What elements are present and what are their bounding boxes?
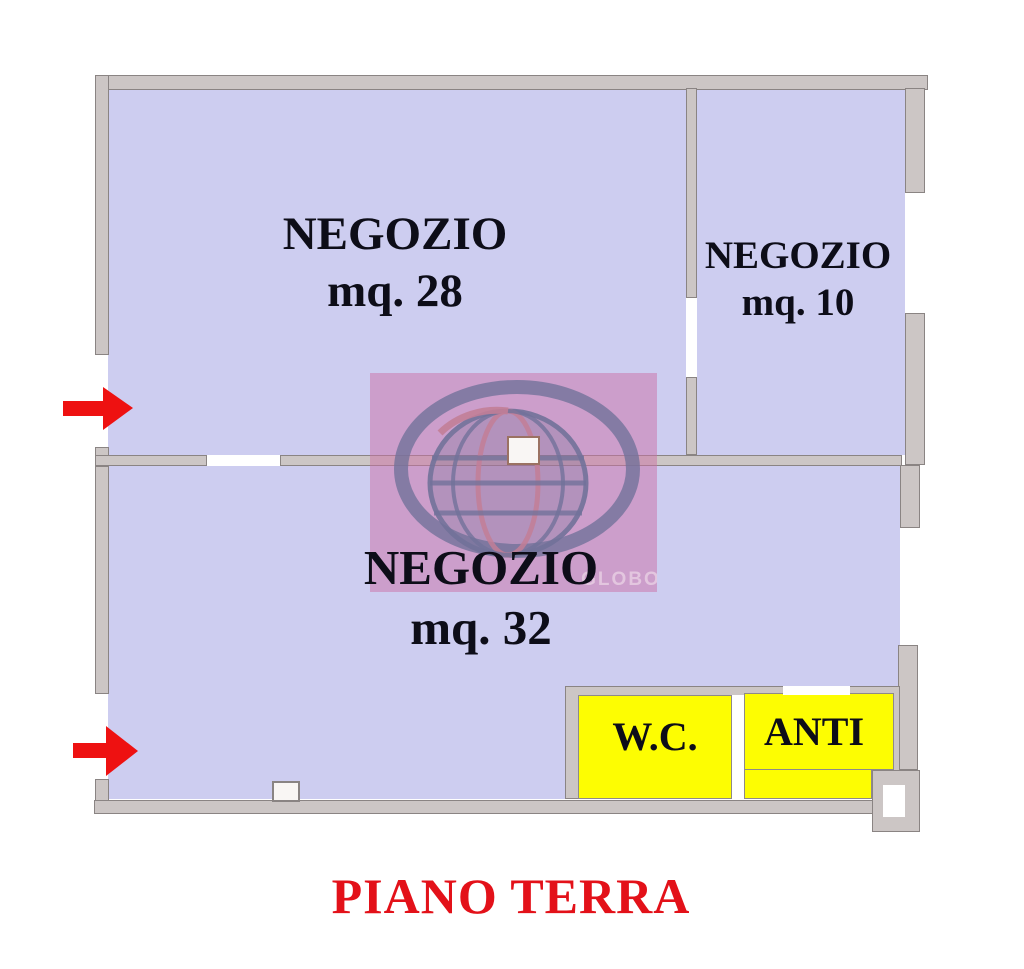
page-title: PIANO TERRA	[211, 867, 811, 925]
door-gap-anti-top	[783, 686, 850, 695]
wall-divider-left	[95, 455, 207, 466]
room-name: NEGOZIO	[281, 538, 681, 598]
wall-left-upper	[95, 75, 109, 355]
label-anti: ANTI	[744, 709, 884, 755]
entrance-arrow-upper	[60, 380, 140, 436]
label-wc: W.C.	[578, 714, 732, 760]
corner-block-recess	[883, 785, 905, 817]
floor-plan: GLOBO NEGOZIO mq. 28 NEGOZIO mq. 10 NEGO…	[0, 0, 1024, 969]
wall-right-upper	[905, 88, 925, 193]
entrance-arrow-lower	[69, 720, 144, 782]
door-divider-wall	[507, 436, 540, 465]
room-area: mq. 28	[195, 263, 595, 320]
room-name: NEGOZIO	[195, 206, 595, 263]
label-negozio-28: NEGOZIO mq. 28	[195, 206, 595, 320]
wall-right-mid	[905, 313, 925, 465]
room-name: NEGOZIO	[648, 232, 948, 279]
wall-top	[96, 75, 928, 90]
room-area: mq. 32	[281, 598, 681, 658]
wall-left-lower	[95, 466, 109, 694]
label-negozio-32: NEGOZIO mq. 32	[281, 538, 681, 658]
wall-bottom	[94, 800, 900, 814]
room-area: mq. 10	[648, 279, 948, 326]
wall-corner-block	[872, 770, 920, 832]
wall-right-lower-a	[900, 465, 920, 528]
wall-right-lower-b	[898, 645, 918, 770]
door-gap-wc-anti	[732, 695, 744, 799]
wall-between-shops-lower	[686, 377, 697, 455]
door-bottom-wall	[272, 781, 300, 802]
label-negozio-10: NEGOZIO mq. 10	[648, 232, 948, 326]
